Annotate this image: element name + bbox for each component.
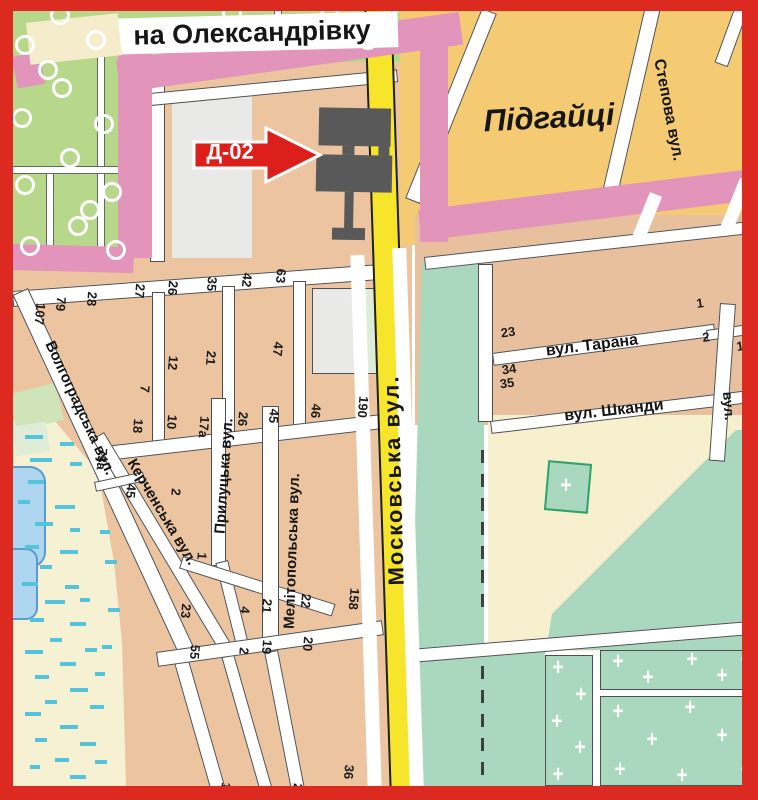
marsh-dash-icon	[95, 760, 107, 764]
cross-icon: +	[684, 696, 695, 720]
marsh-dash-icon	[50, 638, 62, 642]
marsh-dash-icon	[105, 560, 117, 564]
cross-icon: +	[686, 648, 697, 672]
marsh-dash-icon	[35, 522, 53, 526]
house-number: 18	[130, 418, 146, 434]
marsh-dash-icon	[60, 550, 78, 554]
house-number: 2	[168, 488, 184, 497]
frame-bottom	[0, 786, 758, 800]
cemetery-boundary-dashed	[481, 450, 484, 612]
house-number: 63	[273, 268, 289, 284]
cross-icon: +	[552, 656, 563, 680]
street-vertical-right-of-park	[478, 264, 493, 422]
house-number: 55	[187, 644, 203, 660]
tree-icon	[15, 35, 35, 55]
marsh-dash-icon	[30, 618, 44, 622]
map-label: Московська вул.	[378, 374, 410, 586]
marsh-dash-icon	[70, 528, 80, 532]
cross-icon: +	[551, 710, 562, 734]
map-label: вул.	[720, 391, 738, 421]
house-number: 21	[259, 598, 275, 614]
marsh-dash-icon	[60, 662, 76, 666]
house-number: 35	[204, 276, 220, 292]
marsh-dash-icon	[90, 705, 104, 709]
meadow-wedge-2	[12, 422, 50, 456]
house-number: 7	[137, 385, 153, 394]
marsh-dash-icon	[40, 565, 52, 569]
cross-icon: +	[612, 700, 623, 724]
billboard-tab-left	[342, 146, 354, 155]
map-label: на Олександрівку	[133, 14, 371, 51]
house-number: 21	[203, 350, 219, 366]
marsh-dash-icon	[80, 598, 90, 602]
tree-icon	[15, 175, 35, 195]
house-number: 10	[164, 414, 180, 430]
marsh-dash-icon	[35, 675, 49, 679]
house-number: 47	[270, 341, 286, 357]
cross-icon: +	[575, 683, 586, 707]
tree-icon	[94, 114, 114, 134]
marsh-dash-icon	[25, 650, 43, 654]
cross-icon: +	[552, 763, 563, 787]
billboard-tab-right	[378, 146, 389, 155]
cross-icon: +	[612, 650, 623, 674]
marsh-dash-icon	[60, 442, 74, 446]
house-number: 17а	[196, 416, 213, 439]
cross-icon: +	[642, 666, 653, 690]
marsh-dash-icon	[65, 585, 79, 589]
tree-icon	[80, 200, 100, 220]
tree-icon	[102, 182, 122, 202]
house-number: 42	[239, 272, 255, 288]
tree-icon	[60, 148, 80, 168]
cemetery-block-upper-right	[600, 650, 758, 690]
cross-icon: +	[676, 764, 687, 788]
marsh-dash-icon	[45, 600, 65, 604]
marsh-dash-icon	[22, 582, 38, 586]
frame-left	[0, 0, 13, 800]
billboard-base	[332, 228, 365, 241]
house-number: 28	[84, 291, 100, 307]
house-number: 190	[355, 396, 372, 419]
cross-icon: +	[614, 758, 625, 782]
frame-right	[742, 0, 758, 800]
house-number: 19	[259, 639, 275, 655]
frame-top	[0, 0, 758, 11]
marsh-dash-icon	[108, 608, 120, 612]
house-number: 46	[308, 403, 324, 419]
marsh-dash-icon	[25, 435, 43, 439]
orchard-path	[97, 52, 105, 248]
marsh-dash-icon	[70, 775, 86, 779]
cross-icon: +	[716, 724, 727, 748]
marsh-dash-icon	[95, 672, 105, 676]
house-number: 79	[53, 296, 69, 312]
street-row1-div	[293, 281, 306, 427]
marsh-dash-icon	[45, 700, 57, 704]
cross-icon: +	[574, 736, 585, 760]
house-number: 107	[32, 303, 49, 326]
billboard-panel-top	[319, 107, 392, 146]
house-number: 23	[178, 603, 194, 619]
marsh-dash-icon	[28, 480, 44, 484]
house-number: 26	[165, 280, 181, 296]
tree-icon	[106, 240, 126, 260]
marsh-dash-icon	[55, 758, 69, 762]
house-number: 158	[346, 588, 363, 611]
house-number: 35	[499, 375, 515, 392]
marsh-dash-icon	[35, 738, 47, 742]
marsh-dash-icon	[70, 622, 86, 626]
tree-icon	[12, 108, 32, 128]
map-label: Підгайці	[483, 97, 616, 140]
cemetery-boundary-dashed	[481, 666, 484, 784]
marsh-dash-icon	[30, 765, 40, 769]
marsh-dash-icon	[30, 458, 52, 462]
house-number: 36	[341, 764, 357, 780]
street-row1-div	[152, 292, 165, 442]
marsh-dash-icon	[102, 645, 112, 649]
cross-icon: +	[716, 664, 727, 688]
tree-icon	[86, 30, 106, 50]
tree-icon	[38, 60, 58, 80]
marsh-dash-icon	[18, 500, 30, 504]
city-map: Д-02 +++++++++++++++++++ на Олександрівк…	[0, 0, 758, 800]
marsh-dash-icon	[25, 712, 41, 716]
house-number: 27	[132, 283, 148, 299]
marsh-dash-icon	[70, 688, 88, 692]
house-number: 12	[165, 355, 181, 371]
marsh-dash-icon	[80, 742, 96, 746]
cross-icon: +	[646, 728, 657, 752]
tree-icon	[20, 236, 40, 256]
marsh-dash-icon	[85, 648, 97, 652]
house-number: 45	[266, 408, 282, 424]
house-number: 2	[236, 647, 252, 656]
park-strip-bottom	[430, 652, 545, 786]
marsh-dash-icon	[70, 462, 82, 466]
billboard-code-label: Д-02	[194, 137, 266, 166]
cross-icon: +	[560, 474, 571, 498]
marsh-dash-icon	[60, 725, 78, 729]
marsh-dash-icon	[25, 545, 39, 549]
house-number: 23	[500, 324, 516, 341]
marsh-dash-icon	[100, 530, 110, 534]
house-number: 20	[300, 636, 316, 652]
house-number: 26	[235, 411, 251, 427]
street-vertical-billboard-west	[150, 80, 165, 262]
tree-icon	[52, 78, 72, 98]
house-number: 22	[298, 593, 314, 609]
marsh-dash-icon	[55, 505, 75, 509]
house-number: 4	[237, 606, 253, 615]
